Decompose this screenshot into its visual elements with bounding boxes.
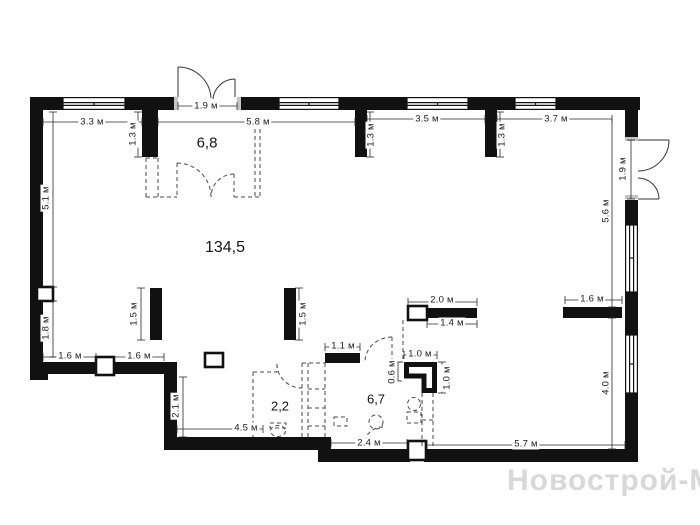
- dim-label: 3.7 м: [542, 114, 569, 125]
- room-area-wc: 6,7: [367, 392, 385, 407]
- dim-label: 5.6 м: [601, 197, 612, 224]
- dim-label: 3.3 м: [78, 117, 105, 128]
- wall-stub: [485, 110, 497, 157]
- dim-label: 1.0 м: [406, 349, 433, 360]
- room-area-hall: 6,8: [197, 135, 218, 152]
- dim-label: 4.0 м: [601, 369, 612, 396]
- dim-label: 1.0 м: [442, 364, 453, 391]
- dim-label: 1.4 м: [438, 318, 465, 329]
- wc-box-icon: [407, 412, 421, 423]
- wall-stub: [142, 110, 158, 157]
- dim-label: 2.0 м: [428, 295, 455, 306]
- dim-label: 1.6 м: [56, 351, 83, 362]
- window: [407, 98, 468, 110]
- entrance-door-top: [178, 67, 235, 99]
- toilet-icon: [271, 426, 286, 437]
- wc-bowl-icon: [408, 398, 421, 411]
- room-area-main: 134,5: [205, 239, 245, 257]
- floor-plan: 3.3 м 5.8 м 3.5 м 3.7 м 1.9 м 1.6 м 1.6 …: [0, 0, 700, 525]
- dim-label: 1.6 м: [578, 294, 605, 305]
- dim-label: 1.9 м: [192, 101, 219, 112]
- watermark-text: Новострой-М: [507, 464, 700, 498]
- wall-stub: [427, 308, 477, 318]
- window: [626, 225, 638, 292]
- dim-label: 5.7 м: [512, 439, 539, 450]
- wc-outline: [334, 320, 433, 448]
- entrance-door-right: [638, 140, 669, 199]
- dim-label: 3.5 м: [413, 114, 440, 125]
- dim-label: 1.5 м: [129, 300, 140, 327]
- dim-label: 5.8 м: [244, 117, 271, 128]
- window: [515, 98, 556, 110]
- dim-label: 4.5 м: [232, 423, 259, 434]
- walls-layer: [30, 97, 640, 462]
- dim-label: 5.1 м: [41, 184, 52, 211]
- dim-label: 1.9 м: [618, 155, 629, 182]
- window: [63, 98, 125, 110]
- dim-label: 2.4 м: [355, 438, 382, 449]
- door-jambs: [174, 97, 638, 199]
- column: [205, 353, 223, 367]
- dim-label: 1.3 м: [366, 121, 377, 148]
- window: [626, 335, 638, 393]
- column: [96, 357, 114, 375]
- window: [279, 98, 339, 110]
- dim-label: 1.6 м: [125, 351, 152, 362]
- doors-layer: [178, 67, 669, 199]
- shaft-duct: [407, 365, 435, 391]
- dimension-lines: [43, 102, 635, 449]
- wall-stub: [563, 307, 622, 318]
- dim-label: 2.1 м: [171, 392, 182, 419]
- dim-label: 1.3 м: [128, 120, 139, 147]
- wall-stub: [284, 288, 296, 340]
- column: [408, 441, 426, 460]
- room-area-bathroom: 2,2: [271, 399, 289, 414]
- floor-plan-canvas: [0, 0, 700, 525]
- dim-label: 1.1 м: [329, 341, 356, 352]
- column: [408, 306, 427, 320]
- column: [37, 287, 53, 301]
- dim-label: 0.6 м: [387, 358, 398, 385]
- wall-stub: [325, 353, 360, 363]
- dim-label: 1.5 м: [298, 300, 309, 327]
- dim-label: 1.8 м: [41, 314, 52, 341]
- wall-stub: [150, 288, 162, 340]
- dim-label: 1.3 м: [497, 121, 508, 148]
